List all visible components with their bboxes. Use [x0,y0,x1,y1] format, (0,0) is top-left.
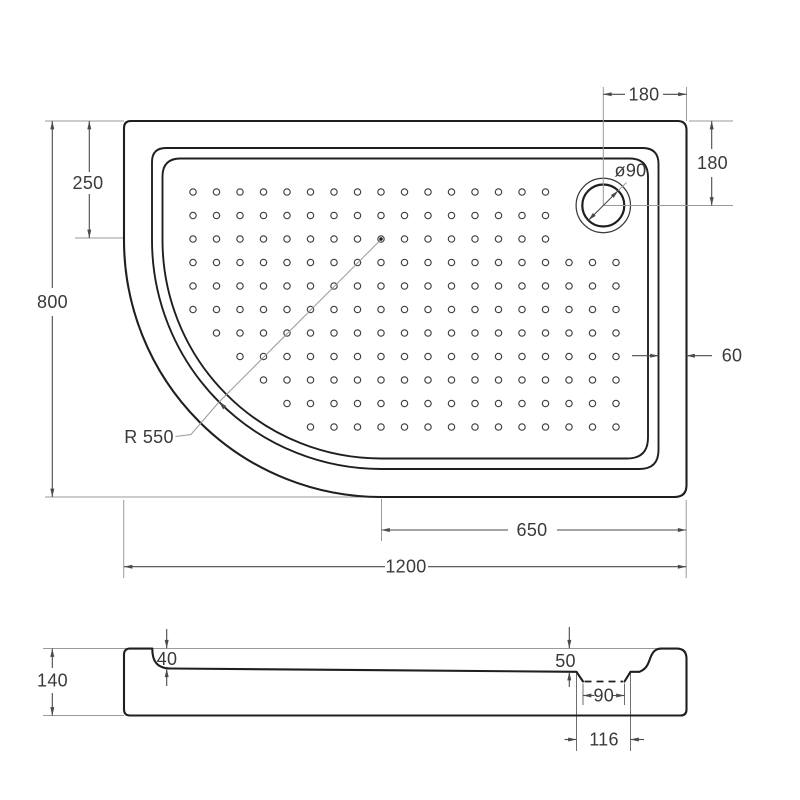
anti-slip-dot [378,212,384,218]
anti-slip-dot [307,400,313,406]
anti-slip-dot [566,424,572,430]
anti-slip-dot [307,283,313,289]
anti-slip-dot [542,424,548,430]
dim-wall-offset: 60 [722,346,743,366]
anti-slip-dot [425,353,431,359]
anti-slip-dot [495,353,501,359]
anti-slip-dot [519,400,525,406]
dim-drain-center-offset: 650 [517,520,548,540]
anti-slip-dot [284,189,290,195]
anti-slip-dot [589,353,595,359]
anti-slip-dot [213,236,219,242]
anti-slip-dot [448,212,454,218]
anti-slip-dot [613,400,619,406]
anti-slip-dot [284,259,290,265]
anti-slip-dot [542,259,548,265]
anti-slip-dot [589,400,595,406]
anti-slip-dot [378,330,384,336]
anti-slip-dot [425,330,431,336]
shower-tray-technical-drawing: 180 180 250 800 ø90 60 R 550 650 1200 [0,0,800,800]
dim-section-height: 140 [37,671,68,691]
anti-slip-dot [401,306,407,312]
anti-slip-dot [425,400,431,406]
anti-slip-dot [401,236,407,242]
anti-slip-dot [378,189,384,195]
anti-slip-dot [448,306,454,312]
anti-slip-dot [566,283,572,289]
anti-slip-dot [425,283,431,289]
anti-slip-dot [472,283,478,289]
anti-slip-dot [378,400,384,406]
anti-slip-dot [425,259,431,265]
anti-slip-dot [378,259,384,265]
anti-slip-dot [589,377,595,383]
anti-slip-dot [613,330,619,336]
anti-slip-dot [566,306,572,312]
anti-slip-dot [519,424,525,430]
anti-slip-dot [237,306,243,312]
anti-slip-dot [448,259,454,265]
anti-slip-dot [401,212,407,218]
anti-slip-dot [495,259,501,265]
anti-slip-dot [589,283,595,289]
anti-slip-dot [425,236,431,242]
tray-floor-edge [163,159,649,459]
anti-slip-dot [472,424,478,430]
anti-slip-dot [425,189,431,195]
radius-center-marker [379,237,383,241]
anti-slip-dot [613,259,619,265]
dim-corner-radius: R 550 [124,427,174,447]
anti-slip-dot [213,283,219,289]
anti-slip-dot [284,400,290,406]
dim-depth-right: 50 [555,651,576,671]
anti-slip-dot [519,236,525,242]
anti-slip-dot [566,353,572,359]
anti-slip-dot [284,330,290,336]
anti-slip-dot [542,353,548,359]
anti-slip-dot [448,330,454,336]
anti-slip-dot [260,306,266,312]
anti-slip-dot [519,377,525,383]
anti-slip-dot [448,424,454,430]
anti-slip-dot [401,330,407,336]
anti-slip-dot [213,259,219,265]
anti-slip-dot [260,212,266,218]
anti-slip-dot [566,377,572,383]
anti-slip-dot [378,353,384,359]
dim-depth-left: 40 [157,649,178,669]
top-view: 180 180 250 800 ø90 60 R 550 650 1200 [37,84,742,578]
anti-slip-dot [354,306,360,312]
anti-slip-dot [519,212,525,218]
dim-drain-diameter: ø90 [615,161,647,181]
anti-slip-dot [519,189,525,195]
dim-drain-recess: 116 [589,730,619,750]
anti-slip-dot [542,189,548,195]
anti-slip-dot [519,283,525,289]
anti-slip-dot [401,189,407,195]
anti-slip-dot [307,377,313,383]
anti-slip-dot [448,189,454,195]
anti-slip-dot [331,259,337,265]
anti-slip-dot [354,400,360,406]
anti-slip-dot [213,212,219,218]
anti-slip-dot [401,259,407,265]
anti-slip-dot-pattern [190,189,619,430]
anti-slip-dot [542,400,548,406]
anti-slip-dot [331,306,337,312]
dim-height: 800 [37,292,68,312]
anti-slip-dot [307,330,313,336]
anti-slip-dot [519,330,525,336]
anti-slip-dot [425,377,431,383]
anti-slip-dot [495,283,501,289]
anti-slip-dot [542,283,548,289]
anti-slip-dot [284,212,290,218]
anti-slip-dot [495,306,501,312]
anti-slip-dot [566,330,572,336]
anti-slip-dot [589,424,595,430]
anti-slip-dot [284,306,290,312]
anti-slip-dot [190,259,196,265]
anti-slip-dot [237,283,243,289]
anti-slip-dot [331,212,337,218]
anti-slip-dot [237,330,243,336]
anti-slip-dot [213,189,219,195]
anti-slip-dot [237,353,243,359]
anti-slip-dot [331,353,337,359]
anti-slip-dot [260,236,266,242]
anti-slip-dot [448,236,454,242]
anti-slip-dot [519,353,525,359]
anti-slip-dot [354,424,360,430]
anti-slip-dot [190,283,196,289]
anti-slip-dot [425,212,431,218]
anti-slip-dot [260,330,266,336]
anti-slip-dot [472,259,478,265]
anti-slip-dot [589,306,595,312]
anti-slip-dot [307,353,313,359]
anti-slip-dot [354,189,360,195]
anti-slip-dot [307,259,313,265]
anti-slip-dot [260,259,266,265]
anti-slip-dot [519,259,525,265]
anti-slip-dot [542,306,548,312]
anti-slip-dot [260,353,266,359]
anti-slip-dot [519,306,525,312]
anti-slip-dot [495,400,501,406]
anti-slip-dot [613,353,619,359]
anti-slip-dot [378,283,384,289]
anti-slip-dot [472,306,478,312]
anti-slip-dot [495,424,501,430]
dim-top-offset: 250 [73,173,104,193]
tray-outer-edge [124,121,687,497]
anti-slip-dot [378,306,384,312]
anti-slip-dot [331,400,337,406]
anti-slip-dot [542,236,548,242]
anti-slip-dot [566,259,572,265]
section-view: 140 40 50 90 116 [37,627,686,751]
anti-slip-dot [472,330,478,336]
anti-slip-dot [284,353,290,359]
anti-slip-dot [237,212,243,218]
anti-slip-dot [237,189,243,195]
anti-slip-dot [331,189,337,195]
anti-slip-dot [354,283,360,289]
anti-slip-dot [307,189,313,195]
anti-slip-dot [260,189,266,195]
dim-width: 1200 [385,557,426,577]
anti-slip-dot [495,330,501,336]
anti-slip-dot [425,306,431,312]
anti-slip-dot [448,353,454,359]
anti-slip-dot [354,353,360,359]
anti-slip-dot [401,400,407,406]
dim-drain-offset-side: 180 [697,153,728,173]
anti-slip-dot [495,212,501,218]
anti-slip-dot [472,400,478,406]
anti-slip-dot [213,306,219,312]
anti-slip-dot [613,306,619,312]
anti-slip-dot [472,212,478,218]
anti-slip-dot [237,236,243,242]
anti-slip-dot [613,377,619,383]
anti-slip-dot [354,236,360,242]
anti-slip-dot [237,259,243,265]
anti-slip-dot [542,212,548,218]
anti-slip-dot [307,306,313,312]
anti-slip-dot [448,400,454,406]
anti-slip-dot [284,236,290,242]
anti-slip-dot [589,330,595,336]
anti-slip-dot [448,377,454,383]
anti-slip-dot [284,377,290,383]
anti-slip-dot [401,353,407,359]
anti-slip-dot [307,424,313,430]
anti-slip-dot [331,236,337,242]
anti-slip-dot [331,330,337,336]
anti-slip-dot [495,189,501,195]
anti-slip-dot [495,377,501,383]
anti-slip-dot [354,330,360,336]
anti-slip-dot [472,236,478,242]
anti-slip-dot [448,283,454,289]
section-dimension-lines [52,627,644,740]
anti-slip-dot [589,259,595,265]
anti-slip-dot [378,424,384,430]
anti-slip-dot [260,283,266,289]
anti-slip-dot [613,283,619,289]
anti-slip-dot [190,189,196,195]
anti-slip-dot [213,330,219,336]
anti-slip-dot [425,424,431,430]
anti-slip-dot [613,424,619,430]
anti-slip-dot [190,236,196,242]
anti-slip-dot [472,353,478,359]
anti-slip-dot [190,306,196,312]
anti-slip-dot [284,283,290,289]
anti-slip-dot [401,283,407,289]
anti-slip-dot [190,212,196,218]
anti-slip-dot [354,212,360,218]
anti-slip-dot [354,377,360,383]
anti-slip-dot [307,236,313,242]
anti-slip-dot [260,377,266,383]
anti-slip-dot [495,236,501,242]
anti-slip-dot [542,377,548,383]
anti-slip-dot [401,377,407,383]
anti-slip-dot [566,400,572,406]
anti-slip-dot [378,377,384,383]
anti-slip-dot [472,189,478,195]
anti-slip-dot [331,377,337,383]
anti-slip-dot [307,212,313,218]
anti-slip-dot [472,377,478,383]
anti-slip-dot [542,330,548,336]
dim-drain-offset-top: 180 [629,84,660,104]
dim-drain-hole: 90 [593,686,614,706]
anti-slip-dot [331,424,337,430]
anti-slip-dot [401,424,407,430]
